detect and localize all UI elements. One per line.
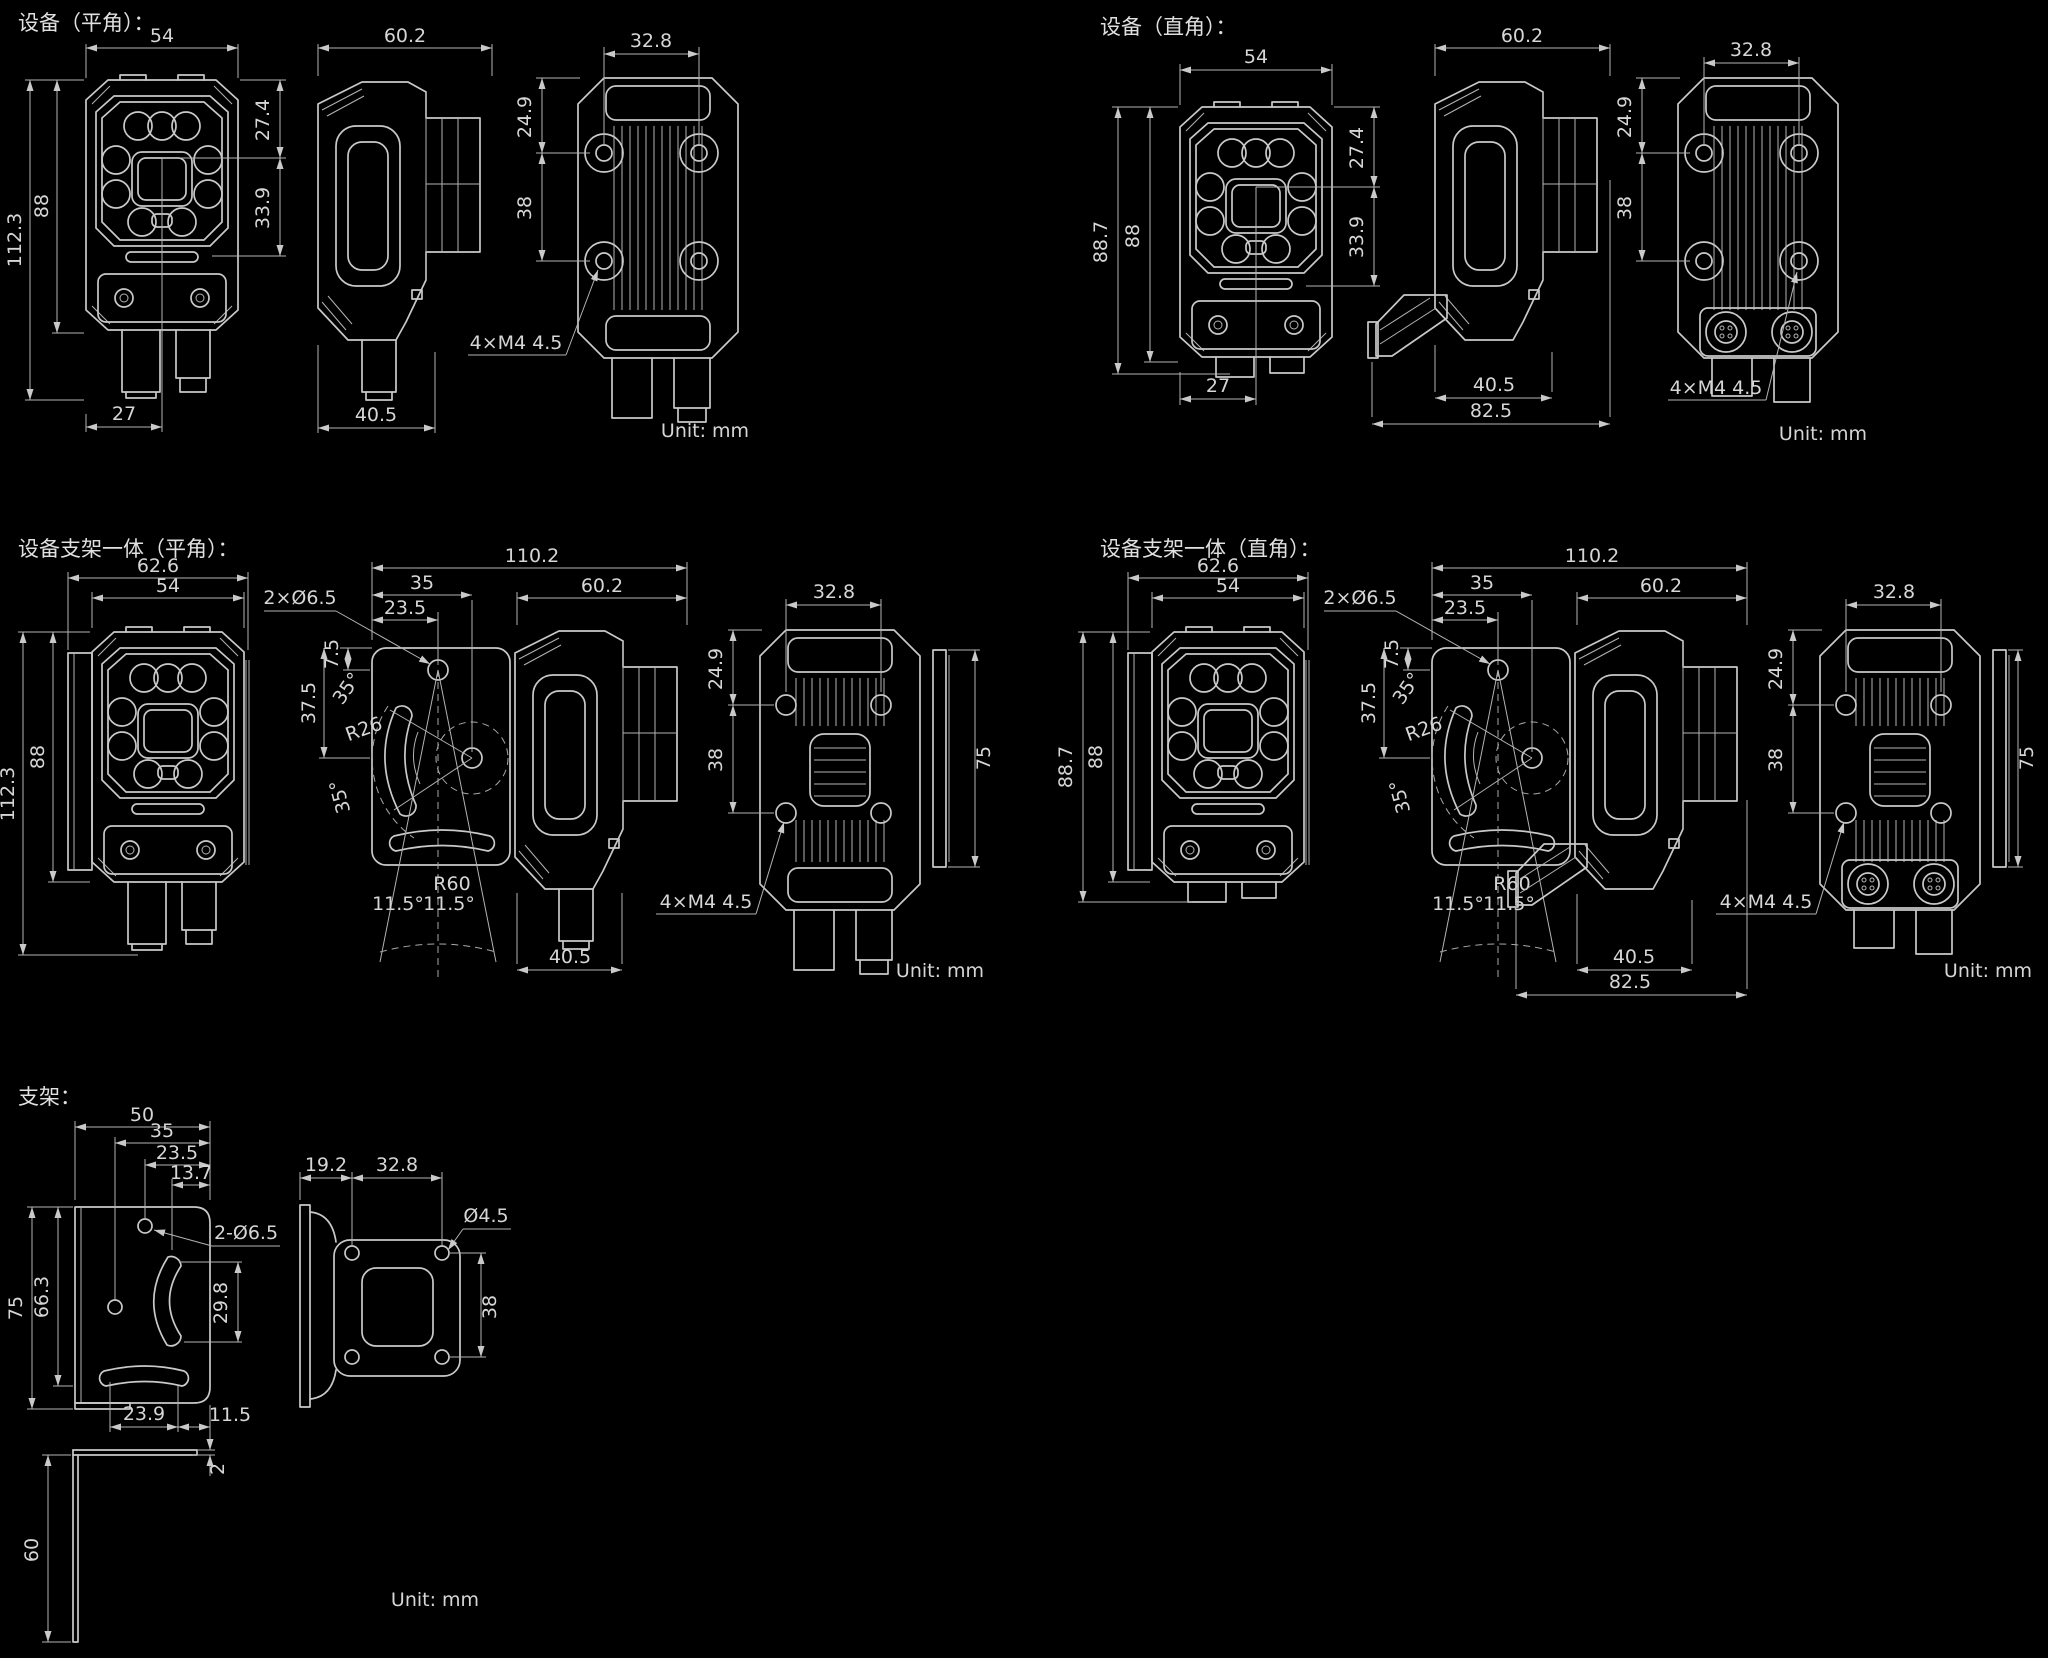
panel-title: 支架：	[18, 1085, 81, 1109]
dim-front-height-total: 112.3	[0, 767, 19, 821]
dim-back-pitch-h: 32.8	[630, 30, 672, 52]
dim-front-width: 54	[150, 25, 174, 47]
dim-plate-23-5: 23.5	[156, 1142, 198, 1164]
device-elbow-front-view: 54 88.7 88 27.4 33.9 27	[1090, 46, 1380, 405]
callout-side-hole: Ø4.5	[463, 1205, 508, 1227]
dim-bracket-37-5: 37.5	[1358, 682, 1380, 724]
dim-front-height-total: 112.3	[4, 213, 26, 267]
dim-swing-right: 11.5°	[423, 893, 475, 915]
dim-back-pitch-v: 38	[514, 196, 536, 220]
dim-back-pitch-h: 32.8	[813, 581, 855, 603]
dim-angle-down: 35°	[1385, 777, 1415, 815]
dim-side-mount: 40.5	[549, 946, 591, 968]
dim-slot-left: 23.9	[123, 1403, 165, 1425]
dim-front-bracket-width: 62.6	[137, 555, 179, 577]
panel-assembly-elbow: 设备支架一体（直角）： 62.6 54 88.7 88 110.2 35 23.…	[1055, 537, 2038, 995]
dim-slot-right: 11.5	[209, 1404, 251, 1426]
dim-back-top-to-hole: 24.9	[514, 96, 536, 138]
assembly-straight-back-view: 32.8 24.9 38 75 4×M4 4.5 Unit: mm	[656, 581, 995, 982]
panel-title: 设备（平角）：	[18, 11, 155, 35]
dim-front-bottom-offset: 27	[112, 403, 136, 425]
callout-plate-holes: 2-Ø6.5	[214, 1222, 278, 1244]
dim-front-height-body: 88	[1085, 745, 1107, 769]
unit-label: Unit: mm	[1779, 423, 1867, 445]
panel-assembly-straight: 设备支架一体（平角）： 62.6 54 112.3 88 110.2 35 23…	[0, 537, 995, 982]
dim-bracket-total: 110.2	[1565, 545, 1619, 567]
dim-side-mount: 40.5	[1473, 374, 1515, 396]
dim-slot-span: 29.8	[210, 1282, 232, 1324]
dim-side-depth: 60.2	[384, 25, 426, 47]
dim-back-pitch-h: 32.8	[1873, 581, 1915, 603]
dim-bracket-35: 35	[410, 572, 434, 594]
callout-thread: 4×M4 4.5	[1670, 377, 1763, 399]
dim-front-width: 54	[1244, 46, 1268, 68]
dim-bracket-23-5: 23.5	[1444, 597, 1486, 619]
dim-front-width: 54	[1216, 575, 1240, 597]
dim-swing-radius: R60	[433, 873, 470, 895]
dim-front-top-to-center: 27.4	[1346, 127, 1368, 169]
panel-title: 设备支架一体（平角）：	[18, 537, 239, 561]
dim-back-plate-height: 75	[2016, 746, 2038, 770]
dim-side-depth: 60.2	[581, 575, 623, 597]
dim-front-center-to-step: 33.9	[252, 187, 274, 229]
dim-bracket-23-5: 23.5	[384, 597, 426, 619]
assembly-elbow-back-view: 32.8 24.9 38 75 4×M4 4.5 Unit: mm	[1716, 581, 2038, 982]
dim-side-depth: 60.2	[1501, 25, 1543, 47]
assembly-elbow-front-view: 62.6 54 88.7 88	[1055, 555, 1309, 902]
dim-bracket-37-5: 37.5	[298, 682, 320, 724]
callout-bracket-holes: 2×Ø6.5	[263, 587, 336, 609]
unit-label: Unit: mm	[391, 1589, 479, 1611]
dim-swing-left: 11.5°	[1432, 893, 1484, 915]
dim-leg-length: 60	[21, 1538, 43, 1562]
panel-bracket: 支架： 50 35 23.5 13.7 75 66.3 2-Ø6.5 29.8 …	[5, 1085, 511, 1642]
assembly-elbow-side-view: 60.2 40.5 82.5	[1508, 575, 1747, 995]
dim-side-mount: 40.5	[355, 404, 397, 426]
dim-side-offset: 19.2	[305, 1154, 347, 1176]
dim-bracket-35: 35	[1470, 572, 1494, 594]
dim-side-total-depth: 82.5	[1470, 400, 1512, 422]
unit-label: Unit: mm	[1944, 960, 2032, 982]
panel-device-elbow: 设备（直角）： 54 88.7 88 27.4 33.9 27 60.2 40.…	[1090, 15, 1867, 445]
callout-thread: 4×M4 4.5	[1720, 891, 1813, 913]
dim-plate-height: 75	[5, 1296, 27, 1320]
dim-back-top-to-hole: 24.9	[1765, 648, 1787, 690]
dim-plate-13-7: 13.7	[170, 1162, 212, 1184]
dim-plate-35: 35	[150, 1120, 174, 1142]
dim-side-pitch-h: 32.8	[376, 1154, 418, 1176]
dim-angle-down: 35°	[325, 777, 355, 815]
device-straight-front-view: 54 112.3 88 27.4 33.9 27	[4, 25, 286, 432]
bracket-l-profile-view: 2 60	[21, 1430, 229, 1642]
callout-bracket-holes: 2×Ø6.5	[1323, 587, 1396, 609]
dim-back-pitch-h: 32.8	[1730, 39, 1772, 61]
dim-back-top-to-hole: 24.9	[705, 648, 727, 690]
device-elbow-back-view: 32.8 24.9 38 4×M4 4.5 Unit: mm	[1614, 39, 1867, 445]
dim-side-total-depth: 82.5	[1609, 971, 1651, 993]
dim-front-width: 54	[156, 575, 180, 597]
dim-front-bracket-width: 62.6	[1197, 555, 1239, 577]
dim-front-height-body: 88	[31, 194, 53, 218]
assembly-straight-front-view: 62.6 54 112.3 88	[0, 555, 249, 955]
dim-front-height-body: 88	[1122, 224, 1144, 248]
callout-thread: 4×M4 4.5	[660, 891, 753, 913]
dim-angle-up: 35°	[328, 668, 365, 708]
panel-title: 设备（直角）：	[1100, 15, 1237, 39]
callout-thread: 4×M4 4.5	[470, 332, 563, 354]
dim-front-top-to-center: 27.4	[252, 99, 274, 141]
engineering-drawing-canvas: 设备（平角）： 54 112.3 88 27.4 33.9 27 60.2 40…	[0, 0, 2048, 1658]
dim-swing-right: 11.5°	[1483, 893, 1535, 915]
dim-front-height-total: 88.7	[1055, 746, 1077, 788]
dim-angle-up: 35°	[1388, 668, 1425, 708]
bracket-front-view: 50 35 23.5 13.7 75 66.3 2-Ø6.5 29.8 23.9…	[5, 1104, 280, 1432]
device-elbow-side-view: 60.2 40.5 82.5	[1368, 25, 1610, 424]
dim-plate-height-inner: 66.3	[31, 1276, 53, 1318]
dim-side-pitch-v: 38	[479, 1295, 501, 1319]
dim-front-bottom-offset: 27	[1206, 375, 1230, 397]
dim-back-top-to-hole: 24.9	[1614, 96, 1636, 138]
dim-swing-left: 11.5°	[372, 893, 424, 915]
dim-bracket-total: 110.2	[505, 545, 559, 567]
dim-back-plate-height: 75	[973, 746, 995, 770]
unit-label: Unit: mm	[661, 420, 749, 442]
dim-side-mount: 40.5	[1613, 946, 1655, 968]
device-straight-back-view: 32.8 24.9 38 4×M4 4.5 Unit: mm	[468, 30, 749, 442]
dim-plate-thickness: 2	[207, 1463, 229, 1475]
dim-back-pitch-v: 38	[705, 748, 727, 772]
device-straight-side-view: 60.2 40.5	[318, 25, 492, 433]
dimension-drawing-page: 设备（平角）： 54 112.3 88 27.4 33.9 27 60.2 40…	[0, 0, 2048, 1658]
dim-slot-radius: R26	[1403, 713, 1446, 746]
dim-front-center-to-step: 33.9	[1346, 216, 1368, 258]
dim-side-depth: 60.2	[1640, 575, 1682, 597]
dim-slot-radius: R26	[343, 713, 386, 746]
unit-label: Unit: mm	[896, 960, 984, 982]
panel-device-straight: 设备（平角）： 54 112.3 88 27.4 33.9 27 60.2 40…	[4, 11, 749, 442]
dim-back-pitch-v: 38	[1765, 748, 1787, 772]
dim-front-height-total: 88.7	[1090, 221, 1112, 263]
dim-front-height-body: 88	[27, 745, 49, 769]
bracket-side-view: 19.2 32.8 Ø4.5 38	[300, 1154, 511, 1407]
dim-back-pitch-v: 38	[1614, 196, 1636, 220]
